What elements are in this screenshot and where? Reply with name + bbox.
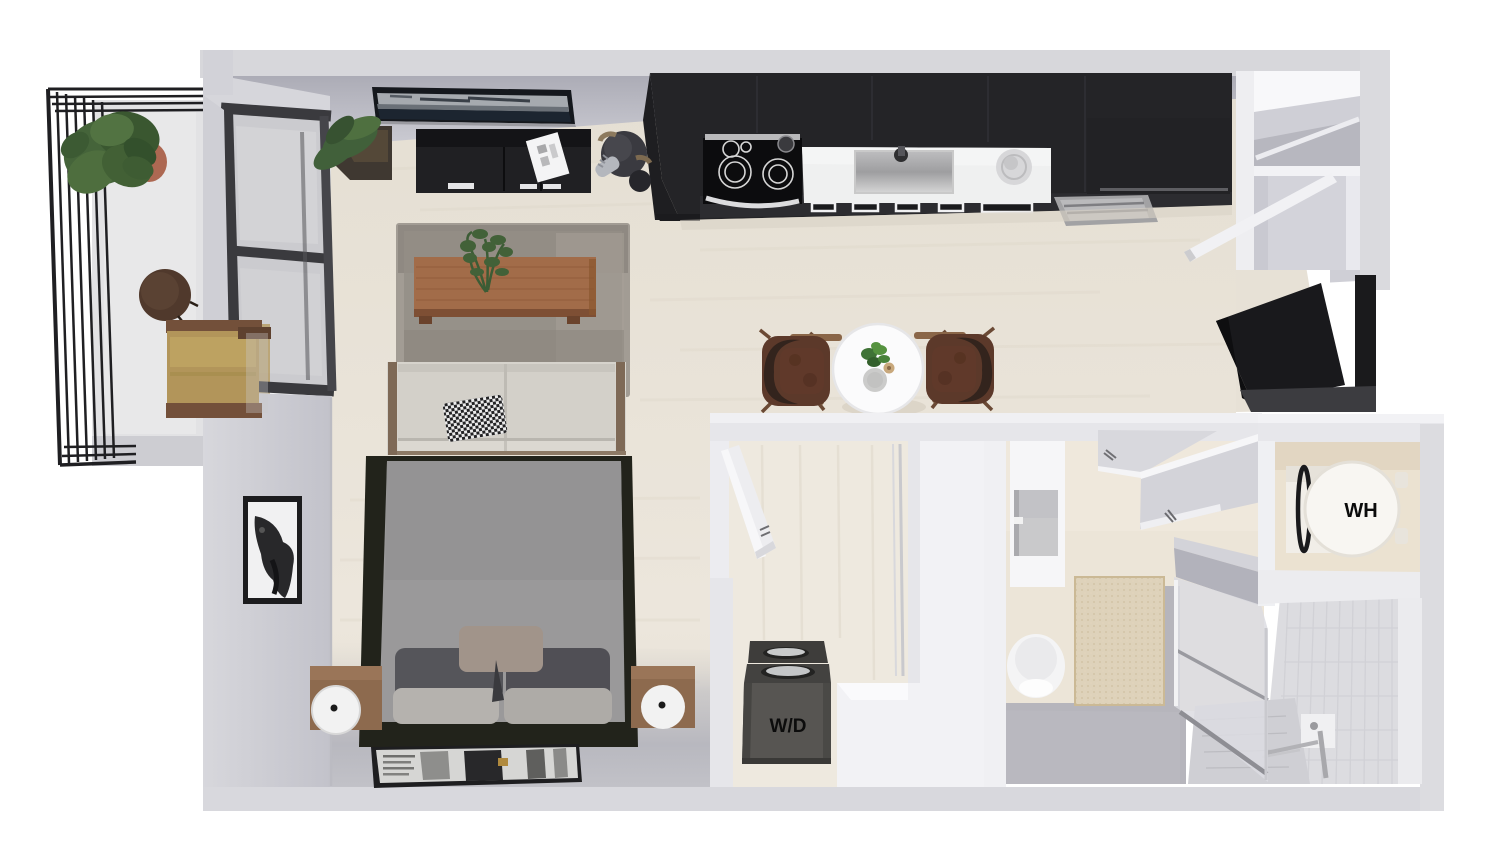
- svg-text:WH: WH: [1344, 500, 1377, 522]
- svg-text:W/D: W/D: [770, 716, 807, 737]
